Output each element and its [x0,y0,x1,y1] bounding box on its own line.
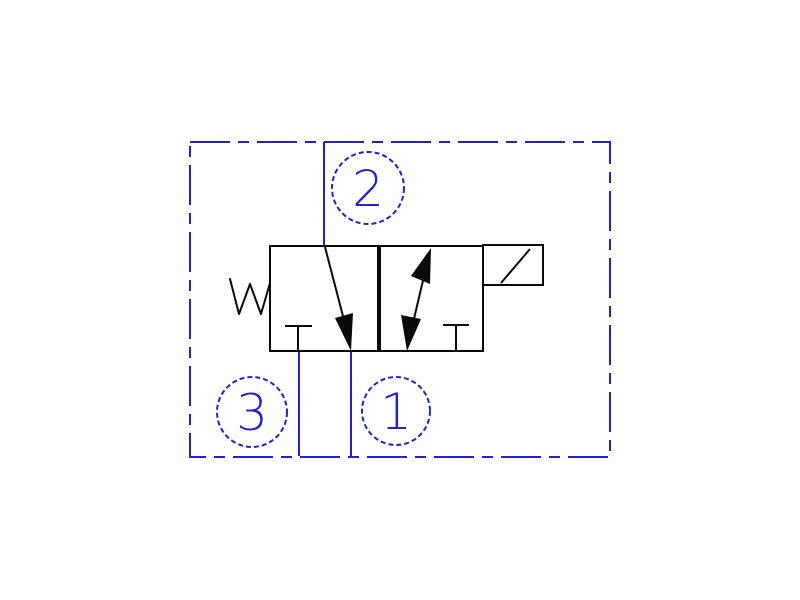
port-1-label: 1 [380,383,412,441]
port-3-label: 3 [236,384,268,442]
valve-schematic-canvas: 2 3 1 [0,0,800,600]
solenoid-actuator-box [483,245,543,285]
valve-position-left-square [270,246,378,351]
return-spring-icon [230,279,270,314]
port-2-label: 2 [352,160,384,218]
valve-schematic-drawing: 2 3 1 [0,0,800,600]
valve-position-right-square [380,246,483,351]
